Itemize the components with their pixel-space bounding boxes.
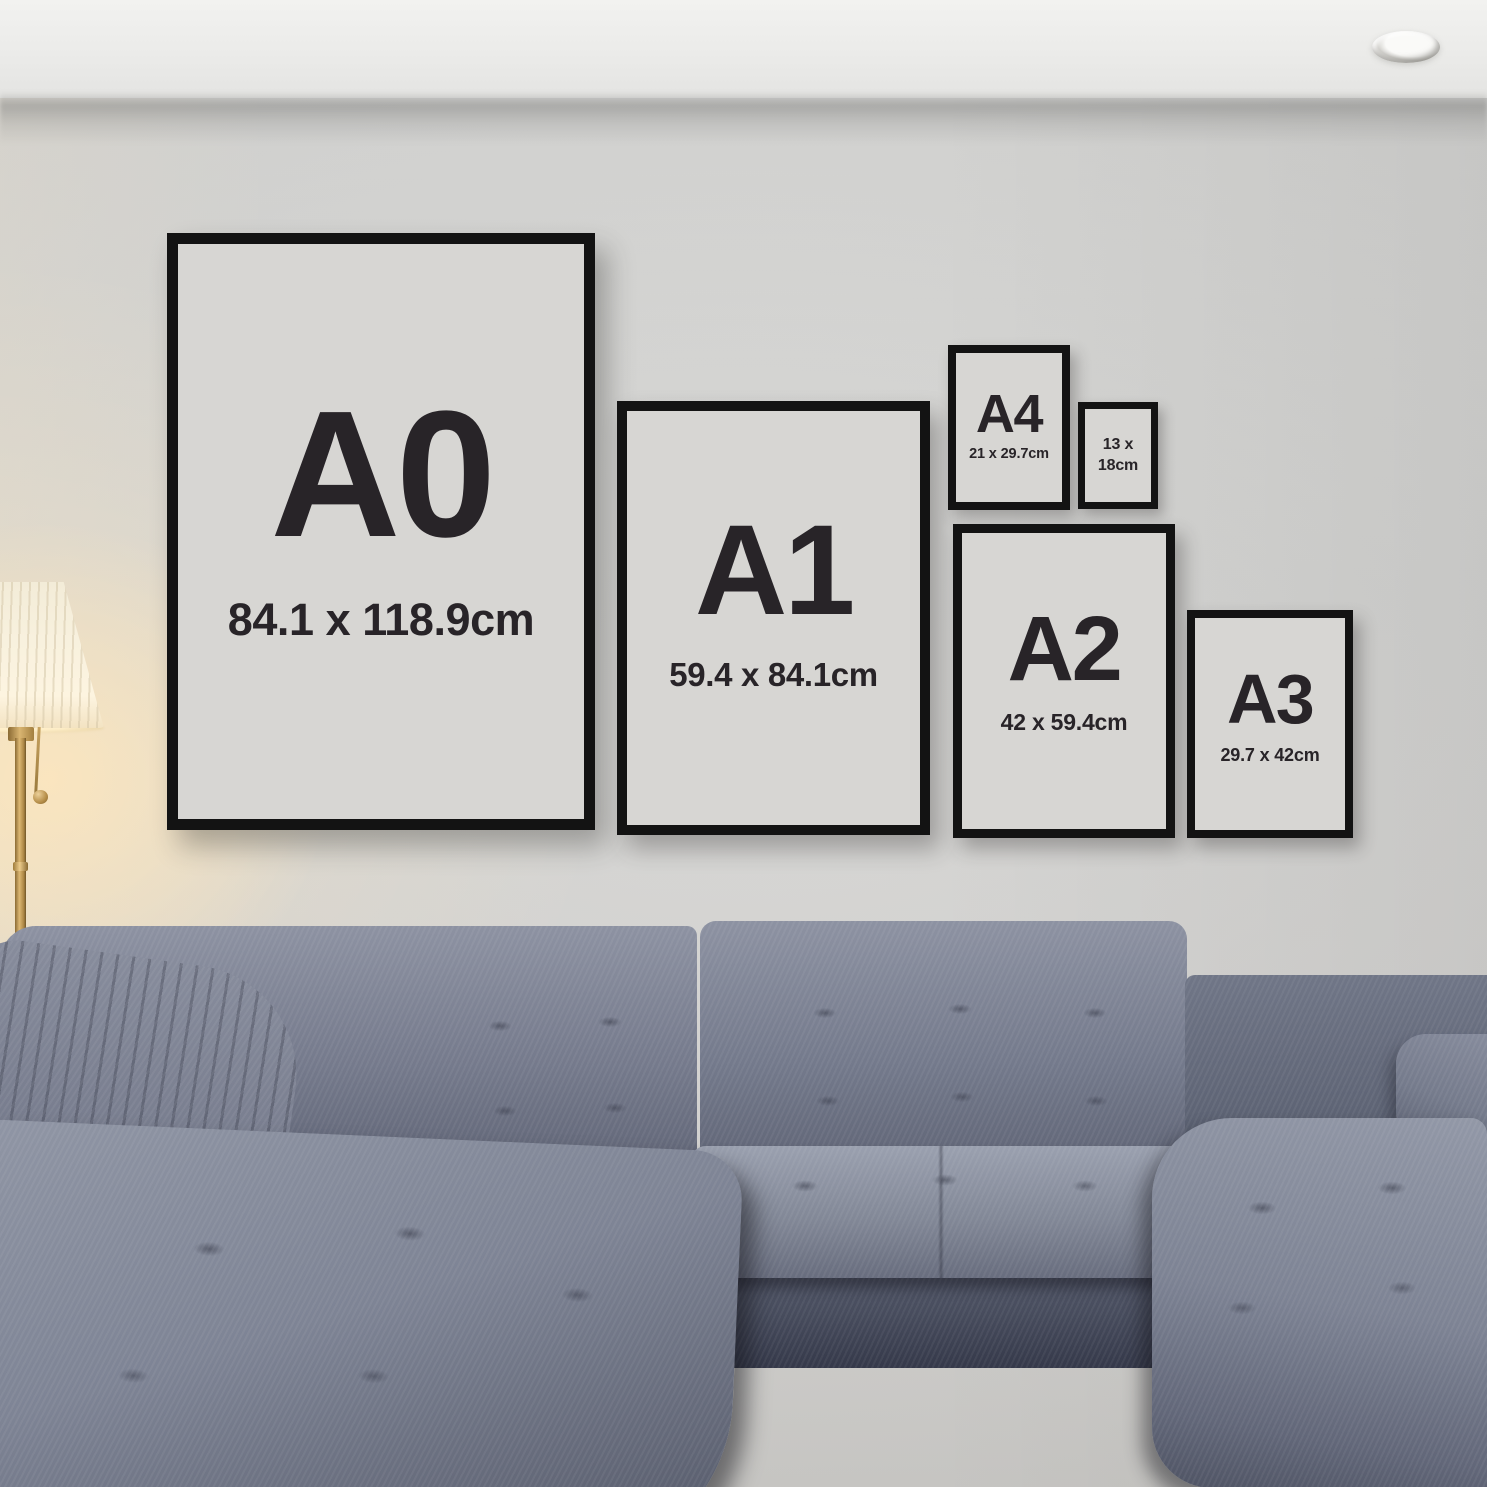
sofa-chaise-right — [1152, 1118, 1487, 1487]
poster-13x18-dimensions-line1: 13 x — [1098, 435, 1138, 456]
poster-a4-dimensions: 21 x 29.7cm — [969, 446, 1049, 462]
poster-a3-label: A3 — [1227, 666, 1313, 733]
poster-a2-dimensions: 42 x 59.4cm — [1001, 709, 1128, 736]
lamp-pull-chain-ball — [33, 790, 48, 804]
frame-a4: A4 21 x 29.7cm — [948, 345, 1070, 510]
sofa-backrest-right — [700, 921, 1187, 1177]
sofa-seat-cushions-center — [690, 1146, 1190, 1278]
poster-13x18-dimensions: 13 x 18cm — [1098, 435, 1138, 477]
poster-a3: A3 29.7 x 42cm — [1195, 618, 1345, 830]
ceiling-wall-shadow — [0, 92, 1487, 144]
lamp-pole — [15, 738, 26, 953]
poster-13x18: 13 x 18cm — [1085, 409, 1151, 502]
ceiling — [0, 0, 1487, 98]
poster-a1-dimensions: 59.4 x 84.1cm — [669, 656, 878, 694]
poster-a0-dimensions: 84.1 x 118.9cm — [228, 594, 534, 646]
lamp-pole-joint — [13, 862, 28, 871]
frame-a3: A3 29.7 x 42cm — [1187, 610, 1353, 838]
poster-a1-label: A1 — [695, 510, 852, 632]
poster-a2-label: A2 — [1007, 606, 1120, 693]
sofa-chaise-left — [0, 1118, 744, 1487]
frame-a1: A1 59.4 x 84.1cm — [617, 401, 930, 835]
poster-a2: A2 42 x 59.4cm — [962, 533, 1166, 829]
frame-a2: A2 42 x 59.4cm — [953, 524, 1175, 838]
poster-a1: A1 59.4 x 84.1cm — [627, 411, 920, 825]
poster-13x18-dimensions-line2: 18cm — [1098, 456, 1138, 477]
poster-a0: A0 84.1 x 118.9cm — [178, 244, 584, 819]
poster-a4: A4 21 x 29.7cm — [956, 353, 1062, 502]
frame-a0: A0 84.1 x 118.9cm — [167, 233, 595, 830]
poster-a0-label: A0 — [270, 389, 491, 560]
living-room-poster-size-guide: A0 84.1 x 118.9cm A1 59.4 x 84.1cm A4 21… — [0, 0, 1487, 1487]
poster-a3-dimensions: 29.7 x 42cm — [1220, 745, 1319, 766]
frame-13x18: 13 x 18cm — [1078, 402, 1158, 509]
poster-a4-label: A4 — [976, 389, 1042, 440]
ceiling-downlight — [1372, 31, 1440, 63]
